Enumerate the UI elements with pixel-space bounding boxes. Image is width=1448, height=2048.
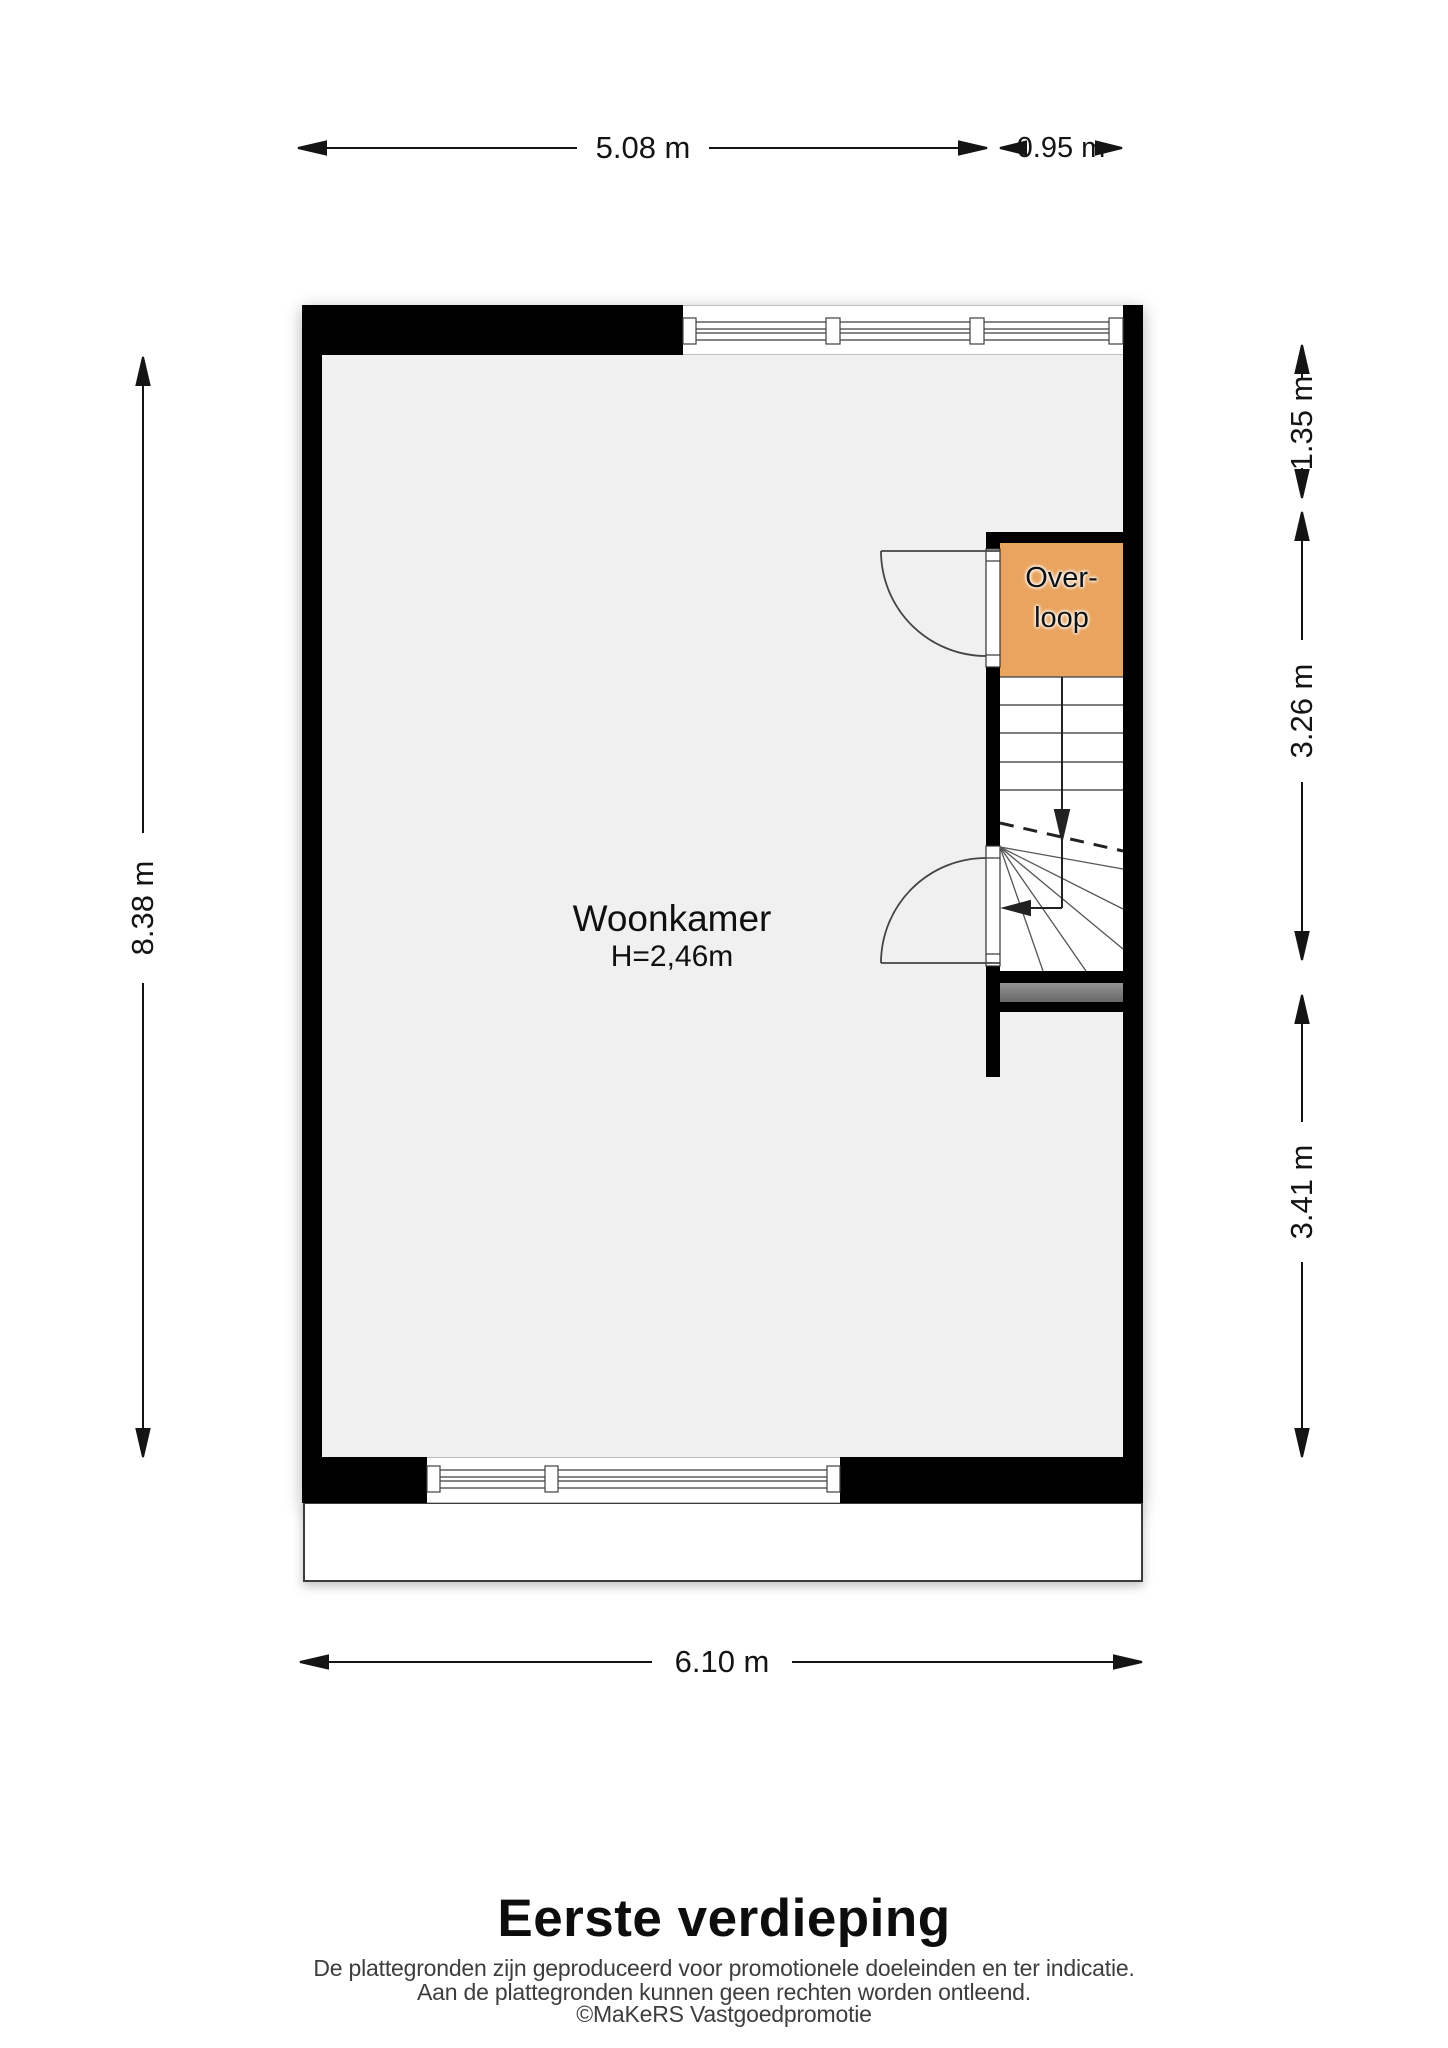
window-bottom-glazing [427, 1470, 840, 1488]
door-bottom-swing [881, 858, 1000, 963]
landing-label-line1: Over- [1000, 558, 1123, 598]
floorplan-page: 5.08 m 0.95 m 8.38 m 1.35 m 3.26 m 3.41 … [0, 0, 1448, 2048]
stair-walk-line [1004, 677, 1069, 915]
landing-label: Over- loop [1000, 558, 1123, 638]
dim-right-top-label: 1.35 m [1282, 353, 1322, 493]
credit-line: ©MaKeRS Vastgoedpromotie [0, 2001, 1448, 2028]
dim-left-label: 8.38 m [123, 838, 163, 978]
dim-right-mid-label: 3.26 m [1282, 641, 1322, 781]
dim-top-main-label: 5.08 m [573, 128, 713, 168]
page-title: Eerste verdieping [0, 1888, 1448, 1949]
dim-top-stair-label: 0.95 m [1016, 128, 1106, 168]
dim-bottom-label: 6.10 m [652, 1642, 792, 1682]
living-room-label: Woonkamer [512, 898, 832, 940]
window-top-glazing [683, 322, 1123, 340]
landing-label-line2: loop [1000, 598, 1123, 638]
disclaimer-line1: De plattegronden zijn geproduceerd voor … [0, 1955, 1448, 1982]
plan-linework [0, 0, 1448, 2048]
door-frame-bottom [986, 846, 1000, 966]
dim-right-bottom-label: 3.41 m [1282, 1122, 1322, 1262]
living-room-height-label: H=2,46m [512, 940, 832, 974]
door-frame-top [986, 549, 1000, 667]
door-top-swing [881, 551, 1000, 656]
